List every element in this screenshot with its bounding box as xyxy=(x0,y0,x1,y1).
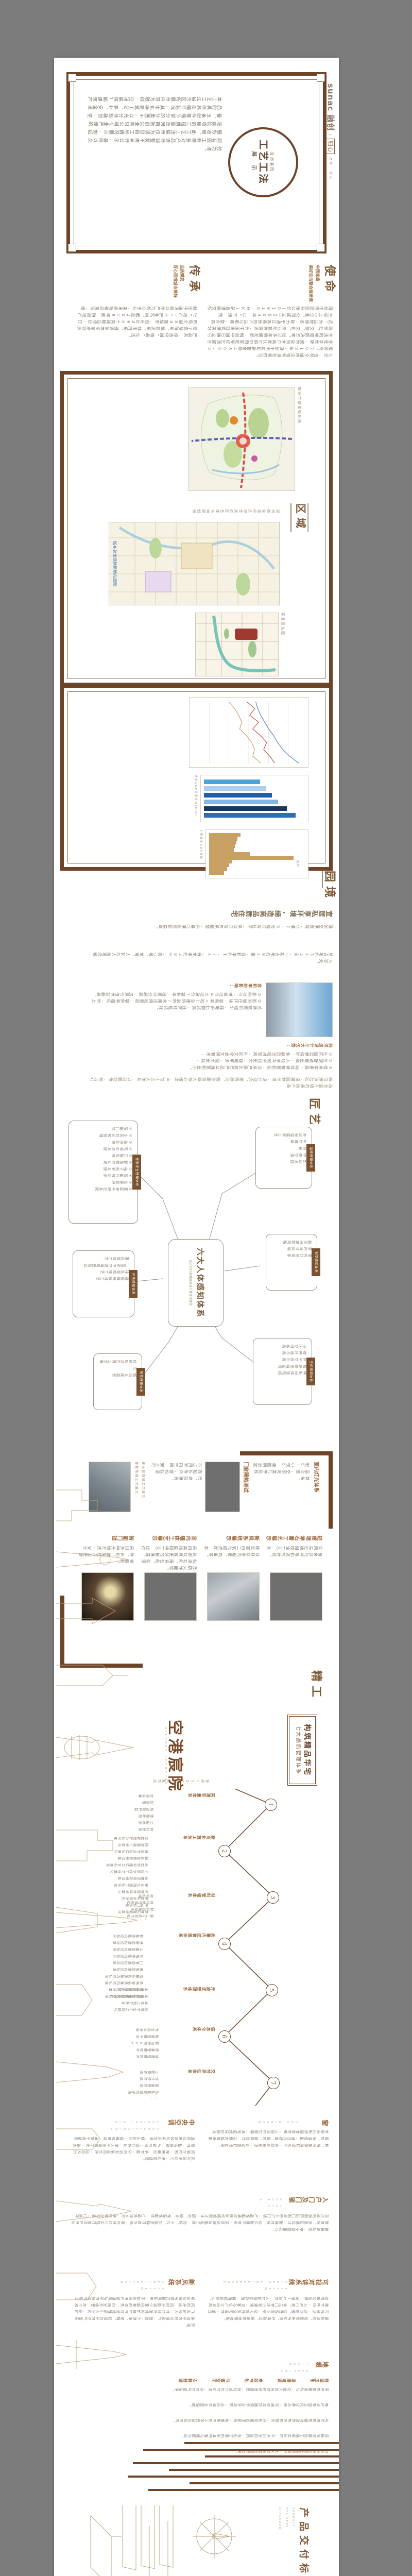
garden-panel: 园境 宜居私享环境,缔造高品质住宅 融创空港宸院,北港7-9层纯洋房社区,萃取洋… xyxy=(60,871,333,1092)
bar xyxy=(209,863,229,867)
sense-tag: 居家安全感知体系 xyxy=(132,1155,141,1190)
list-item: 楼板降噪隔音工艺 xyxy=(79,1275,129,1282)
list-item: 室内灯光体系 xyxy=(270,1252,312,1259)
window-test-text: 不占用室内空间,安全可靠超长寿命,增加保温层、高效隔音。 xyxy=(150,1462,202,1482)
jinggong-header-box: 构筑精品华宅 七大品质管理体系 xyxy=(287,1715,317,1786)
mission-heritage-panel: 使命 中国家庭 美好生活整合服务商 融创中国控股有限公司(01918.HK)是香… xyxy=(60,265,333,368)
sense-items: ①智能门锁②小区封闭式管理③监控系统④可视对讲系统⑤门磁系统⑥智能梯控系统⑦电子… xyxy=(75,1125,132,1192)
line-chart-housing xyxy=(189,697,308,768)
delivery-title: 产品交付标准 xyxy=(300,2507,307,2576)
sense-items: 轻质喷涂石膏工艺展示新风系统展示 xyxy=(99,1358,136,1378)
mindmap-center: 六大人体感知体系 全方位打造健康舒适人居生活体系 xyxy=(168,1239,224,1327)
list-item: 外墙保温展示工艺 xyxy=(261,1131,306,1138)
delivery-en: STANDARD xyxy=(276,2507,283,2576)
sense-tag: 视觉感知体系 xyxy=(312,1248,320,1276)
list-item: 室内设计风格 xyxy=(270,1245,312,1252)
list-item: ③监控系统 xyxy=(75,1139,132,1145)
sense-box-environment: 环境感知体系 室内墙体工艺三层双中空玻璃隔音测试排水管降噪工艺楼板降噪隔音工艺 xyxy=(73,1250,134,1317)
sense-tag: 嗅觉感知体系 xyxy=(136,1368,145,1396)
garden-lead: 宜居私享环境,缔造高品质住宅 xyxy=(111,907,333,918)
guixin-seal-icon: 归心 xyxy=(326,139,335,154)
heritage-tagline2: 匠心回馈城市美好 xyxy=(172,265,179,305)
chart-caption: 近年GDP总量走势(亿元) xyxy=(192,775,199,822)
list-item: ⑩家庭安全防范系统 xyxy=(75,1185,132,1192)
screenshot-canvas: sunac 融创 | 归心 至臻 · 致远 宝港宸院 工艺工法 展 示 本工艺工… xyxy=(0,0,412,2576)
sense-items: 小区空间布局楼座环境布局户型空间布局精装修收纳空间样板间体验动线 xyxy=(259,1343,306,1376)
delivery-en: DELIVERY xyxy=(283,2507,289,2576)
heritage-title: 传承 xyxy=(191,265,197,305)
photo-window-test xyxy=(205,1462,240,1512)
region-title-block: 区域 xyxy=(290,503,308,532)
garden-b4-list: ①社区圈层更纯粹:客群层次相对较高,社区文化更文明有序;②生活舒适度更高:人均享… xyxy=(127,1051,333,1071)
step-number: 6 xyxy=(218,2030,231,2043)
step-name: 开放式管理体系 xyxy=(148,1986,215,1992)
step-number: 5 xyxy=(266,1984,278,1996)
list-item: ⑥智能梯控系统 xyxy=(75,1159,132,1165)
floor-sub-k: 安静舒适 xyxy=(166,2377,197,2384)
spec-head-door: 入户门及门锁 xyxy=(282,2196,329,2202)
spec-en: VIDEO ENTERPHONE SYSTEM xyxy=(220,2278,287,2292)
light-heading: 室内灯光体系 xyxy=(313,1462,319,1523)
step-number: 1 xyxy=(265,1799,277,1811)
list-item: 中央空调 xyxy=(261,1151,306,1158)
bar xyxy=(209,841,236,844)
map-airport-zone-plan: 城乡总体规划用地布局图 xyxy=(109,522,280,605)
map-zhengzhou-master-plan xyxy=(188,387,295,491)
sense-items: 室内墙体工艺三层双中空玻璃隔音测试排水管降噪工艺楼板降噪隔音工艺 xyxy=(79,1255,129,1282)
sense-items: 外墙保温展示工艺中空玻璃地暖中央空调新风系统 xyxy=(261,1131,306,1165)
svg-text:城乡总体规划用地布局图: 城乡总体规划用地布局图 xyxy=(112,541,117,586)
map-caption: 项目区位图 xyxy=(279,613,286,636)
step-number: 7 xyxy=(267,2077,280,2089)
corner-rule-icon xyxy=(240,1451,333,1455)
step-number: 3 xyxy=(267,1891,279,1904)
poster-paper: sunac 融创 | 归心 至臻 · 致远 宝港宸院 工艺工法 展 示 本工艺工… xyxy=(54,58,339,2576)
jinggong-box-line2: 七大品质管理体系 xyxy=(295,1724,301,1776)
bar xyxy=(204,806,287,811)
bar xyxy=(209,833,241,837)
list-item: 样板间体验动线 xyxy=(259,1369,306,1376)
spec-head-ventilation: 新风系统 xyxy=(164,2278,195,2285)
list-item: 新风系统展示 xyxy=(99,1371,136,1378)
charts-frame: 近年GDP总量走势(亿元) GDP 主要城市GDP对比 xyxy=(60,684,333,871)
step-name: 信息化体系 xyxy=(159,2026,215,2032)
gypsum-heading: 轻质喷涂石膏工艺展示 xyxy=(266,1534,322,1540)
list-item: ②生活舒适度更高:人均享有的空间更大,绿地更多,服务更优; xyxy=(127,1058,333,1064)
photo-air-ducts xyxy=(207,1572,260,1621)
spec-head-intercom: 可视对讲系统 xyxy=(287,2278,329,2285)
list-item: 中空玻璃 xyxy=(261,1138,306,1145)
list-item: 户型空间布局 xyxy=(259,1356,306,1363)
list-item: 轻质喷涂石膏工艺展示 xyxy=(99,1358,136,1371)
garden-b4-head: 纯洋房设计三大优势: xyxy=(178,1042,333,1049)
step-name: 材料管理体系 xyxy=(153,1892,215,1899)
list-item: ⑧智能科技监测 xyxy=(75,1172,132,1179)
logo-divider: | xyxy=(327,134,334,136)
list-item: ③得房率更高:同样建筑面积段,洋房产品比高层产品公摊面积更小。 xyxy=(127,1064,333,1071)
intro-paragraph: 本工艺工法展示区所展示内容为融创·空港宸院1期建筑产品的具体品质细节状况,其中包… xyxy=(84,94,222,152)
bar xyxy=(209,848,234,852)
photo-gypsum xyxy=(270,1572,322,1621)
list-item: 室内墙体工艺 xyxy=(79,1255,129,1262)
region-title: 区域 xyxy=(295,503,307,532)
title-circle: 宝港宸院 工艺工法 展 示 xyxy=(228,127,298,197)
bar xyxy=(209,852,250,856)
construction-sketch xyxy=(75,2505,245,2576)
list-item: ②小区封闭式管理 xyxy=(75,1132,132,1139)
mission-tagline2: 美好生活整合服务商 xyxy=(307,265,314,305)
bar xyxy=(204,793,272,798)
bar xyxy=(204,779,260,784)
sense-box-smell: 嗅觉感知体系 轻质喷涂石膏工艺展示新风系统展示 xyxy=(93,1353,142,1410)
sense-tag: 温感感知体系 xyxy=(306,1144,315,1172)
floor-sub-k: 高效节能 xyxy=(232,2377,263,2384)
floor-sub-k: 节省空间 xyxy=(199,2377,230,2384)
bar xyxy=(209,837,237,840)
garden-block1: 融创空港宸院,北港7-9层纯洋房社区,萃取洋房传承精髓,启幕北港优居新篇章。 xyxy=(91,923,333,946)
circle-sub-title: 展 示 xyxy=(251,151,258,174)
circle-main-title: 工艺工法 xyxy=(260,140,267,185)
fresh-air-text: 降低室内二氧化碳浓度,有效排除室内烟雾、病毒等。 xyxy=(203,1545,260,1568)
step-name: 交付评估体系 xyxy=(159,2068,215,2075)
heritage-paragraph: 融创中国深耕以地产为核心主业,秉承高端精品定位,推行“地产+”全产业布局。截至2… xyxy=(74,305,197,368)
zigzag-line xyxy=(219,1789,286,2108)
mission-title: 使命 xyxy=(326,265,333,305)
list-item: 小区空间布局 xyxy=(259,1343,306,1349)
list-item: 排水管降噪工艺 xyxy=(79,1268,129,1275)
spec-text-window: 外窗采用断桥铝合金外框,三层双中空玻璃,具有更优异的隔音、隔热、保温性能;通过冷… xyxy=(205,2128,329,2189)
floor-sub-k: 温度可调 xyxy=(265,2377,296,2384)
step-number: 4 xyxy=(218,1938,231,1950)
list-item: ②影响居住环境:容积率=地上总建筑面积/总建设用地面积,容积率越低,地上总建筑面… xyxy=(92,998,262,1011)
rotated-banner: sunac 融创 | 归心 至臻 · 致远 宝港宸院 工艺工法 展 示 本工艺工… xyxy=(54,58,339,2576)
spec-text-intercom: 选用知名品牌,采用7寸彩屏,人性化操作界面,精确视频显示、楼宇呼叫;入户门禁、单… xyxy=(205,2295,329,2353)
heritage-tagline1: 品质蝶变 xyxy=(179,265,185,305)
step-name: 标准化施工体系 xyxy=(148,1834,215,1841)
photo-wall-block xyxy=(144,1572,197,1621)
list-item: 新风系统 xyxy=(261,1158,306,1165)
bar xyxy=(209,844,235,848)
stripe-divider xyxy=(123,2442,339,2496)
wall-text: 采用高精度砌块工艺,比传统砌块具有更好的精确度、抗渗功能、隔音性能、保温及防火性… xyxy=(140,1545,197,1568)
circle-project-name: 宝港宸院 xyxy=(269,152,276,173)
sense-items: 新亚洲建筑风格室内设计风格室内灯光体系 xyxy=(270,1239,312,1259)
mission-tagline1: 中国家庭 xyxy=(314,265,321,305)
list-item: 楼座环境布局 xyxy=(259,1349,306,1356)
list-item: ④可视对讲系统 xyxy=(75,1145,132,1152)
spec-head-hvac: 中央空调 xyxy=(159,2119,195,2125)
sense-box-thermal: 温感感知体系 外墙保温展示工艺中空玻璃地暖中央空调新风系统 xyxy=(255,1127,312,1189)
list-item: ①智能门锁 xyxy=(75,1125,132,1132)
list-item: ⑦电子巡更系统 xyxy=(75,1165,132,1172)
sunac-logo: sunac 融创 xyxy=(327,83,334,131)
garden-closing: 四位臻造社区,深耕园林环境,设计理念、建筑标准、物业服务四大核心维度,严苛十五大… xyxy=(85,1076,333,1093)
gypsum-text: 采用先进德国喷涂工艺,具有良好的呼吸和透气性能。 xyxy=(266,1545,322,1568)
bar-chart-gdp-trend xyxy=(200,775,308,822)
window-test-heading: 门窗隔热测试 xyxy=(242,1462,249,1523)
jinggong-title: 精工 xyxy=(313,1670,319,1701)
corner-rule-icon xyxy=(329,1451,333,1529)
spec-head-window: 窗 xyxy=(298,2119,329,2125)
sense-tag: 空间感知体系 xyxy=(306,1358,315,1385)
fresh-air-heading: 新风系统展示 xyxy=(203,1534,260,1540)
mindmap-center-title: 六大人体感知体系 xyxy=(197,1248,203,1318)
skyline-lineart xyxy=(56,1469,144,2448)
mission-paragraph: 融创中国控股有限公司(01918.HK)是香港联交所主板上市企业。公司成立于20… xyxy=(207,305,333,368)
craft-panel: 匠艺 六大人体感知体系 全方位打造健康舒适人居生活体系 xyxy=(60,1096,333,1449)
list-item: 新亚洲建筑风格 xyxy=(270,1239,312,1245)
spec-en: FLOOR HEATING xyxy=(262,2361,308,2374)
map-caption: 郑州市整体规划图 xyxy=(296,387,302,424)
list-item: ①社区圈层更纯粹:客群层次相对较高,社区文化更文明有序; xyxy=(127,1051,333,1058)
list-item: ①影响地价:楼面地价=土地单价/容积率,楼面地价越高,房屋价值也就越高。 xyxy=(92,991,262,998)
chart-annotation: GDP xyxy=(294,860,301,867)
sense-tag: 环境感知体系 xyxy=(129,1270,138,1298)
garden-b3-list: ①影响地价:楼面地价=土地单价/容积率,楼面地价越高,房屋价值也就越高。②影响居… xyxy=(92,991,262,1011)
delivery-title-block: 产品交付标准 PRODUCT DELIVERY STANDARD xyxy=(276,2507,307,2576)
step-name: 质量内控管理体系 xyxy=(143,1932,215,1939)
step-number: 2 xyxy=(218,1845,231,1857)
jinggong-box-line1: 构筑精品华宅 xyxy=(303,1724,310,1776)
bar xyxy=(204,800,278,804)
map-project-location xyxy=(195,613,279,676)
floor-sub-k: 舒适卫生 xyxy=(298,2377,329,2384)
bar xyxy=(209,856,294,859)
list-item: ⑨访客管理 xyxy=(75,1179,132,1185)
garden-b3-head: 容积率的影响: xyxy=(107,982,262,989)
brand-tagline: 至臻 · 致远 xyxy=(327,157,334,180)
region-frame: 区域 郑州市整体规划图 郑州 xyxy=(60,371,333,686)
spec-head-floorheating: 地暖 xyxy=(308,2361,329,2367)
light-text: 射灯+小夜灯,使照明更富层次感,空间亮度与节能性兼备。 xyxy=(253,1462,310,1482)
sense-box-safety: 居家安全感知体系 ①智能门锁②小区封闭式管理③监控系统④可视对讲系统⑤门磁系统⑥… xyxy=(68,1121,138,1224)
intro-frame: 宝港宸院 工艺工法 展 示 本工艺工法展示区所展示内容为融创·空港宸院1期建筑产… xyxy=(66,72,327,253)
project-brand-en: AIRPORT CHENYUAN xyxy=(162,1720,168,1794)
garden-block2: 总占地约343亩,一期占地约94亩,容积率约1.74,绿地率约38%,将心境、地… xyxy=(91,951,333,977)
sense-box-visual: 视觉感知体系 新亚洲建筑风格室内设计风格室内灯光体系 xyxy=(266,1234,317,1291)
spec-en: THE WINDOW xyxy=(251,2119,298,2125)
delivery-en: PRODUCT xyxy=(289,2507,296,2576)
map-caption: 郑州航空港经济综合实验区总体布局规划图 xyxy=(110,507,280,515)
list-item: 精装修收纳空间 xyxy=(259,1363,306,1369)
bar xyxy=(204,786,266,791)
mindmap-center-note: 全方位打造健康舒适人居生活体系 xyxy=(187,1260,194,1306)
sense-box-space: 空间感知体系 小区空间布局楼座环境布局户型空间布局精装修收纳空间样板间体验动线 xyxy=(253,1338,312,1405)
spec-en: DOOR & LOCK xyxy=(241,2196,282,2209)
delivery-panel: 产品交付标准 PRODUCT DELIVERY STANDARD xyxy=(60,2502,333,2576)
wall-heading: 室内墙体工艺展示 xyxy=(140,1534,197,1540)
list-item: 三层双中空玻璃隔音测试 xyxy=(79,1262,129,1268)
project-brand-block: 空港宸院 AIRPORT CHENYUAN xyxy=(162,1720,178,1794)
photo-residence-towers xyxy=(266,982,333,1037)
list-item: ⑤门磁系统 xyxy=(75,1152,132,1159)
bar xyxy=(204,813,296,818)
garden-title: 园境 xyxy=(326,871,333,902)
project-brand-name: 空港宸院 xyxy=(171,1720,178,1794)
bar xyxy=(209,860,232,863)
list-item: 地暖 xyxy=(261,1145,306,1151)
